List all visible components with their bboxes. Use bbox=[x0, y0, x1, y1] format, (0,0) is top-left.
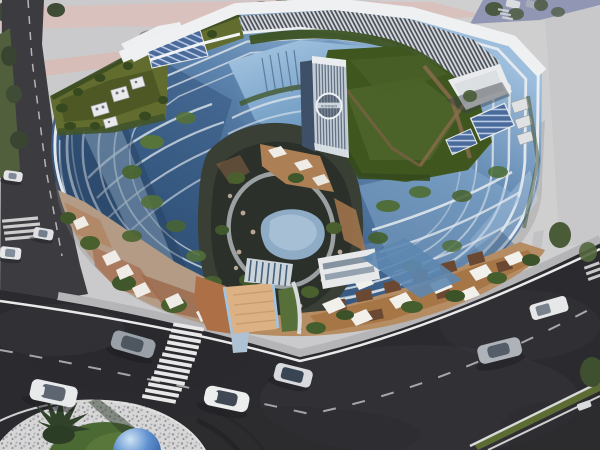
svg-text:KORNER: KORNER bbox=[321, 104, 338, 108]
